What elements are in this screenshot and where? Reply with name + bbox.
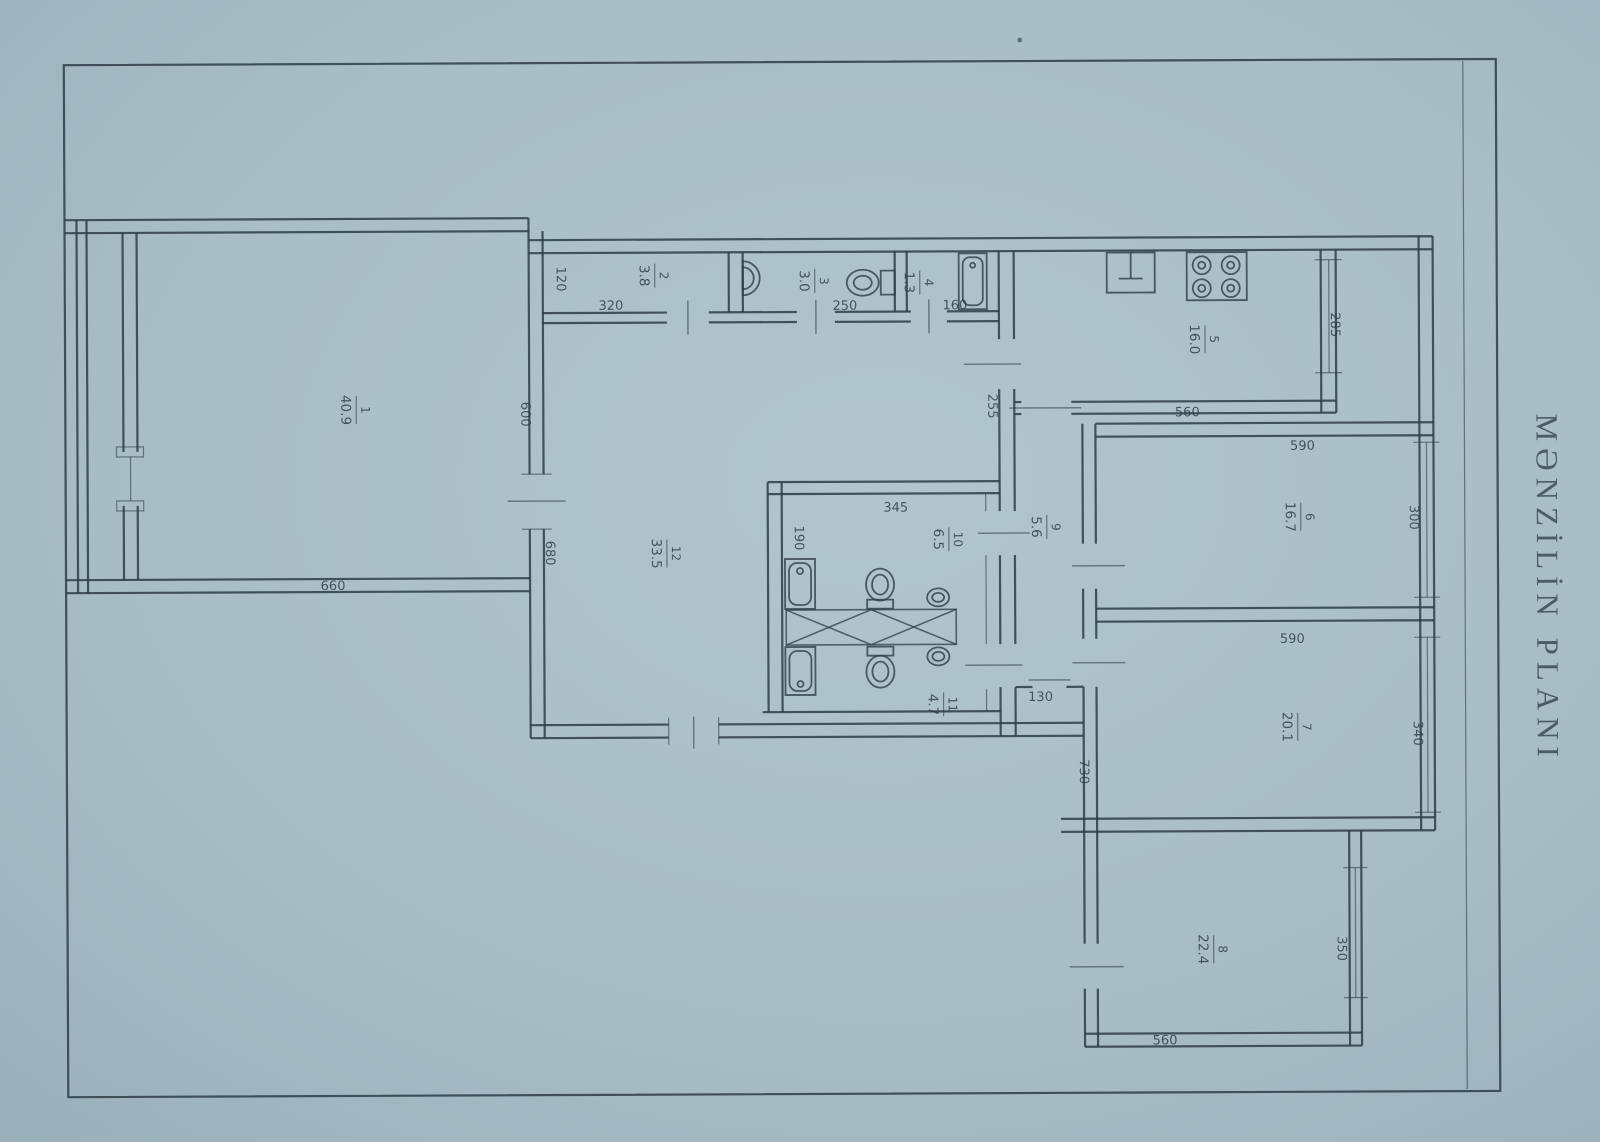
dim-320: 320	[598, 299, 623, 314]
room-area: 40.9	[337, 395, 353, 425]
room-number: 12	[669, 546, 683, 561]
room-area: 4.7	[925, 694, 941, 716]
floor-plan: 1 40.9 2 3.8 3 3.0 4 1.3 5 16.0 6 16.7	[0, 0, 1600, 1142]
room-number: 1	[358, 406, 372, 414]
room-area: 5.6	[1028, 516, 1044, 538]
room-area: 22.4	[1195, 934, 1211, 964]
window-icon	[1427, 637, 1428, 812]
dim-130: 130	[1028, 690, 1053, 705]
room-area: 1.3	[901, 272, 917, 294]
scan-speck	[1017, 38, 1022, 43]
room-number: 6	[1303, 513, 1317, 521]
room-number: 8	[1216, 945, 1230, 953]
dim-660: 660	[321, 579, 346, 594]
dim-120: 120	[553, 267, 568, 292]
dim-250: 250	[832, 299, 857, 314]
room-area: 3.0	[796, 270, 812, 292]
room-number: 3	[817, 277, 831, 285]
dim-255: 255	[984, 394, 999, 419]
dim-285: 285	[1327, 312, 1342, 337]
room-number: 7	[1300, 723, 1314, 731]
dim-190: 190	[791, 526, 806, 551]
dim-590-room7: 590	[1280, 632, 1305, 647]
dim-600: 600	[517, 402, 532, 427]
room-number: 11	[946, 697, 960, 712]
room-number: 4	[922, 279, 936, 287]
room-area: 3.8	[636, 265, 652, 287]
window-icon	[1426, 442, 1427, 597]
dim-730: 730	[1076, 759, 1091, 784]
dim-560-kitchen: 560	[1175, 405, 1200, 420]
dim-590-room6: 590	[1290, 439, 1315, 454]
room-number: 2	[657, 272, 671, 280]
room-area: 16.0	[1186, 324, 1202, 354]
dim-340: 340	[1410, 721, 1425, 746]
dim-345: 345	[883, 501, 908, 516]
dim-680: 680	[542, 541, 557, 566]
room-area: 20.1	[1279, 712, 1295, 742]
paper-background	[0, 0, 1600, 1142]
window-icon	[1355, 868, 1356, 998]
page-title: MƏNZİLİN PLANI	[1529, 414, 1566, 764]
room-number: 5	[1207, 335, 1221, 343]
scanned-floor-plan-page: 1 40.9 2 3.8 3 3.0 4 1.3 5 16.0 6 16.7	[0, 0, 1600, 1142]
room-area: 6.5	[930, 529, 946, 551]
dim-160: 160	[942, 298, 967, 313]
dim-560-room8: 560	[1153, 1033, 1178, 1048]
dim-350: 350	[1334, 936, 1349, 961]
room-area: 16.7	[1282, 502, 1298, 532]
room-number: 9	[1049, 523, 1063, 531]
dim-300: 300	[1406, 505, 1421, 530]
room-number: 10	[951, 532, 965, 547]
room-area: 33.5	[648, 539, 664, 569]
